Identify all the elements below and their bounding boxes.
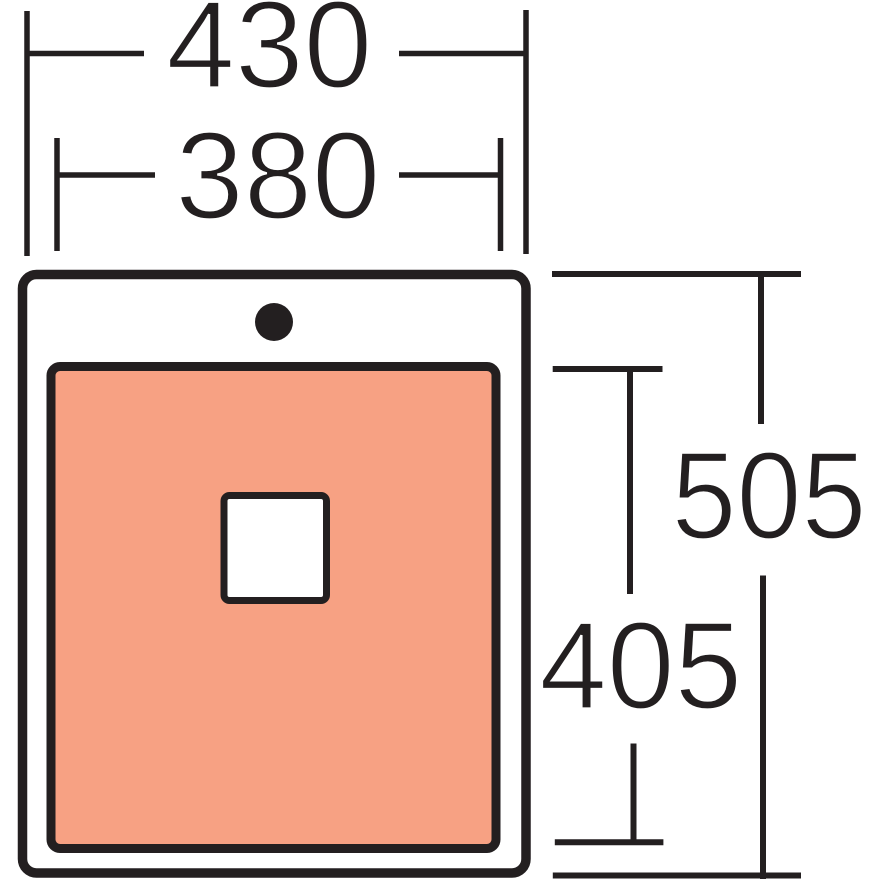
svg-text:380: 380 <box>175 108 380 246</box>
svg-text:430: 430 <box>166 0 372 115</box>
svg-text:405: 405 <box>539 598 742 736</box>
svg-text:505: 505 <box>672 428 867 566</box>
